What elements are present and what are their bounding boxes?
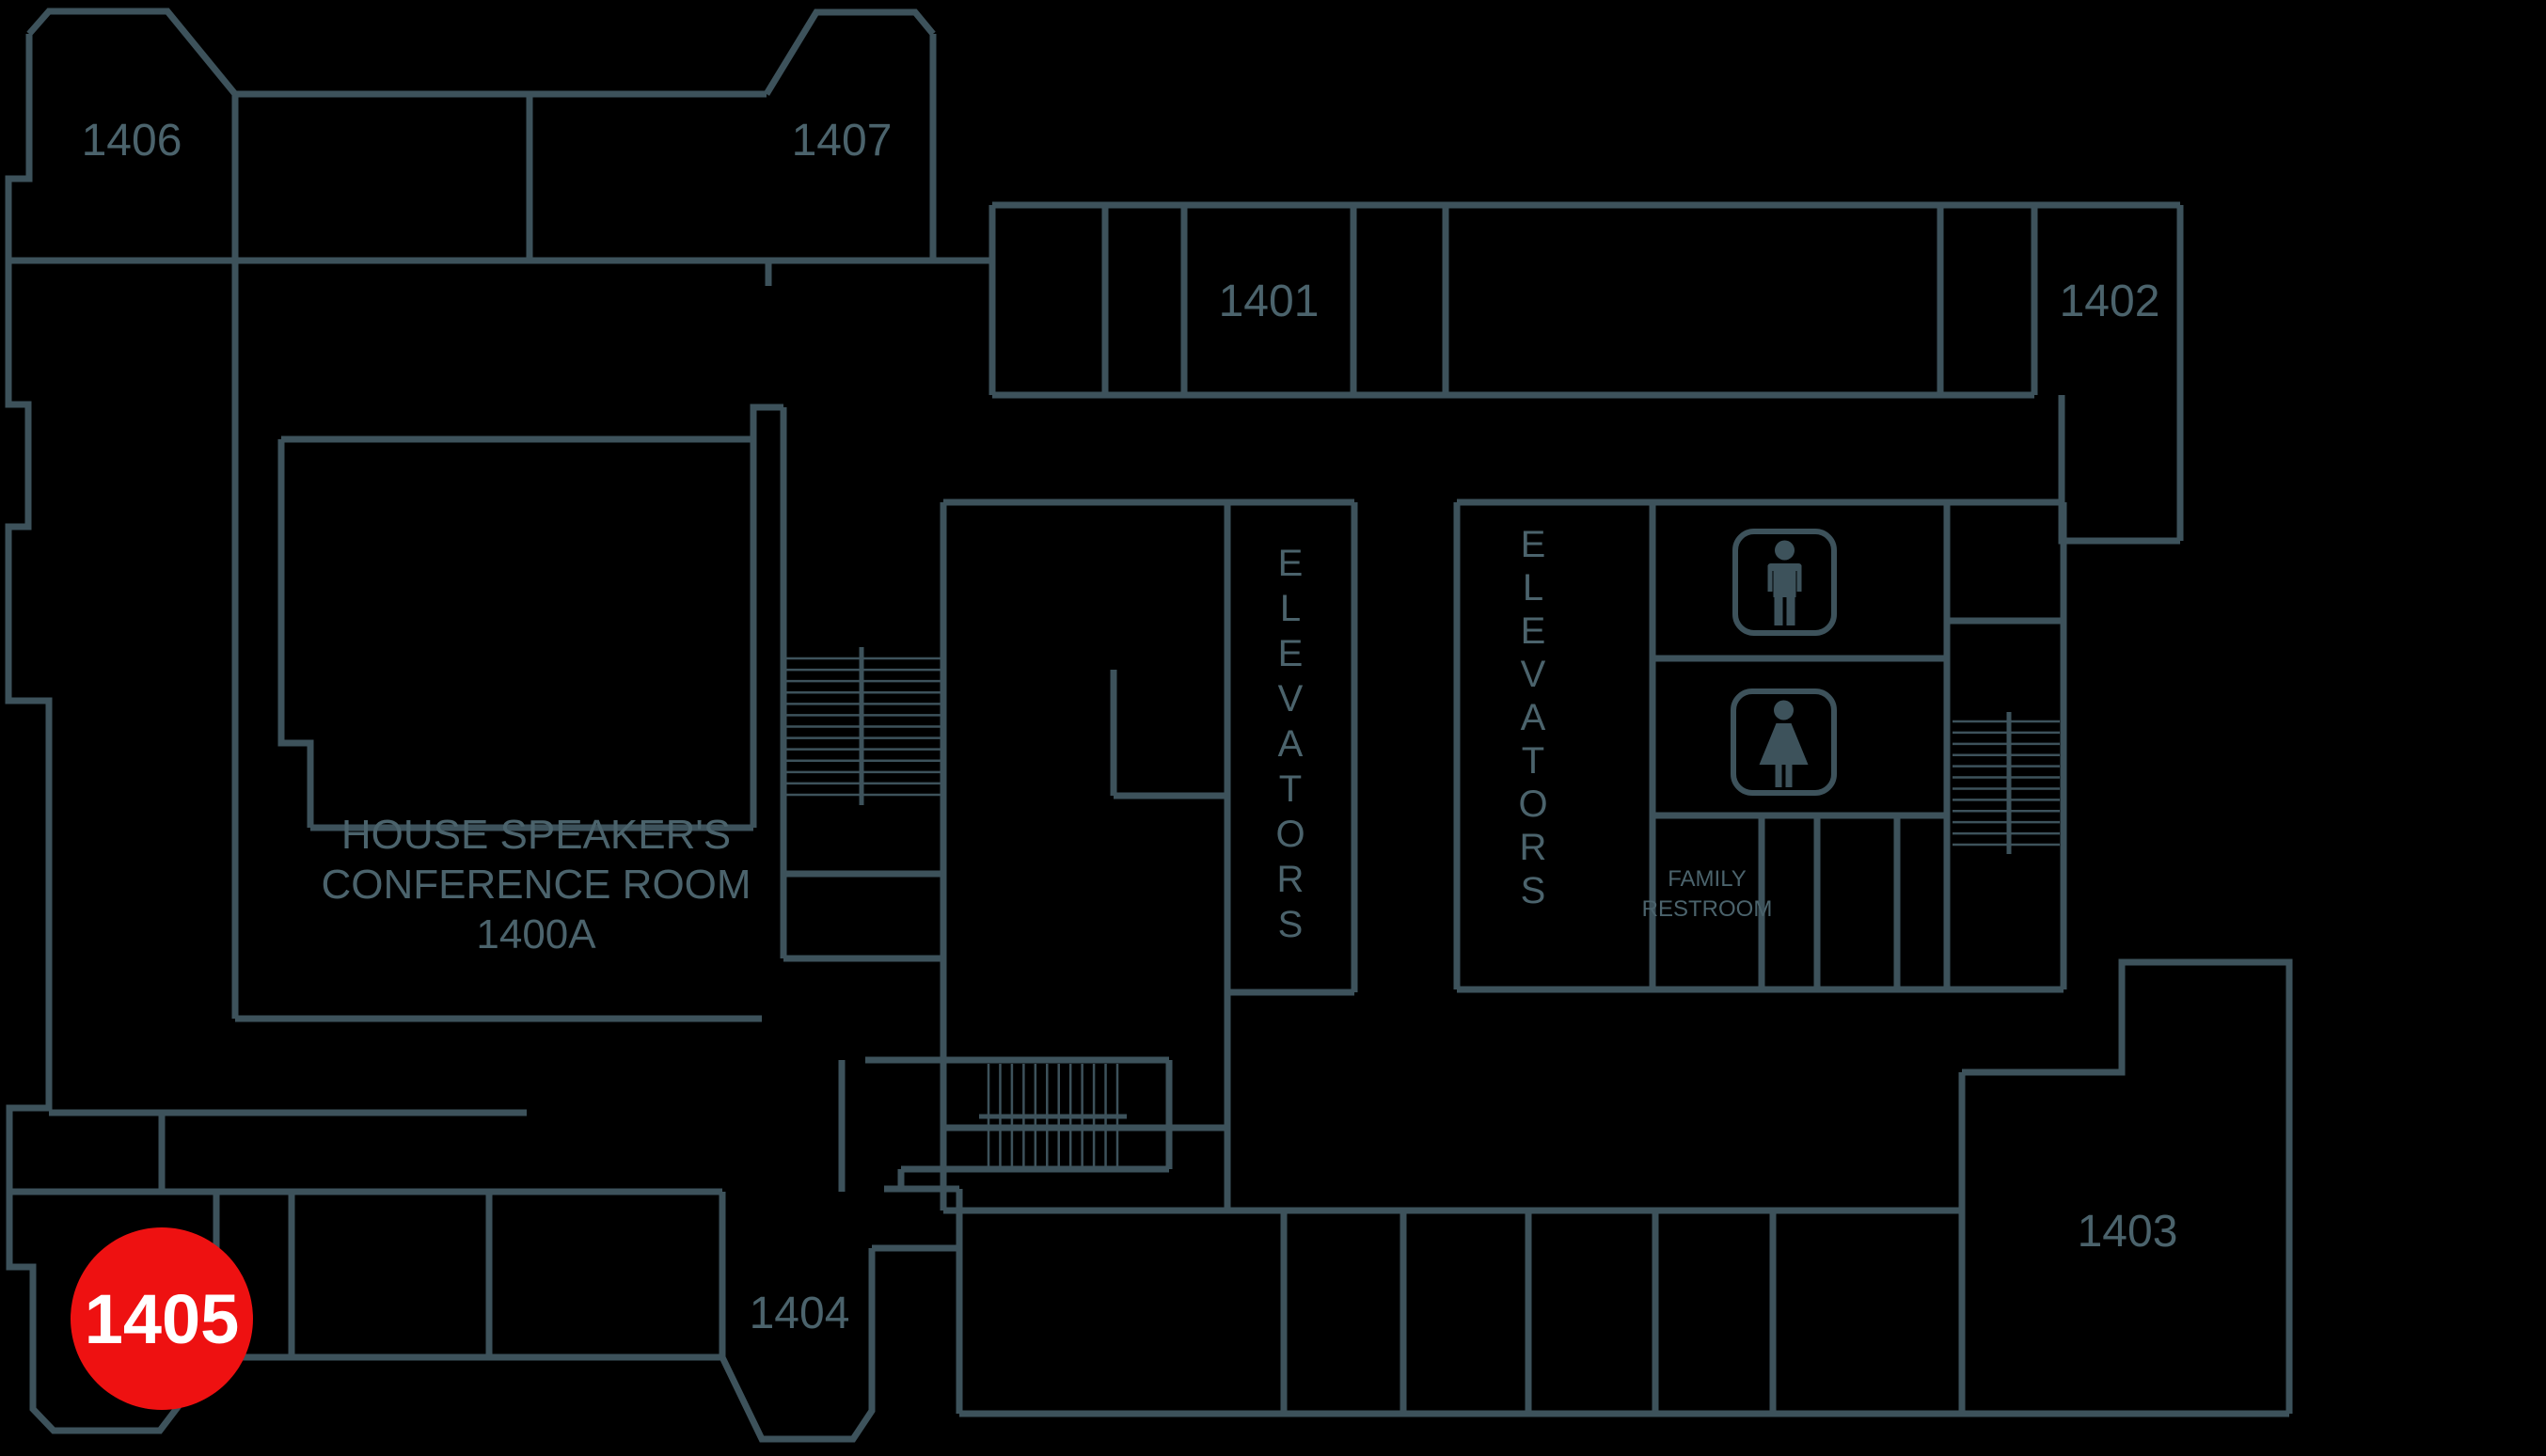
elevators-letter: E <box>1278 633 1304 674</box>
conference-room-label: HOUSE SPEAKER'S <box>341 812 731 858</box>
room-label-1402: 1402 <box>2060 277 2160 326</box>
elevators-letter: R <box>1520 827 1547 868</box>
floor-plan: 140614071401140214031404HOUSE SPEAKER'SC… <box>0 0 2546 1456</box>
elevators-letter: A <box>1521 697 1546 738</box>
family-restroom-label: RESTROOM <box>1642 896 1773 922</box>
elevators-letter: E <box>1278 543 1304 584</box>
elevators-letter: L <box>1523 567 1543 609</box>
elevators-label-1: ELEVATORS <box>1275 543 1305 945</box>
elevators-letter: E <box>1521 610 1546 652</box>
room-label-1401: 1401 <box>1219 277 1320 326</box>
elevators-letter: S <box>1278 904 1304 945</box>
floor-plan-svg: 140614071401140214031404HOUSE SPEAKER'SC… <box>0 0 2546 1456</box>
elevators-letter: E <box>1521 524 1546 565</box>
elevators-letter: O <box>1275 814 1305 855</box>
selected-room-label: 1405 <box>85 1280 240 1358</box>
elevators-letter: T <box>1522 740 1544 782</box>
elevators-letter: T <box>1279 768 1302 810</box>
elevators-label-2: ELEVATORS <box>1518 524 1547 911</box>
elevators-letter: O <box>1518 783 1547 825</box>
room-label-1406: 1406 <box>82 116 182 166</box>
room-label-1407: 1407 <box>792 116 893 166</box>
room-label-1404: 1404 <box>750 1289 850 1338</box>
elevators-letter: A <box>1278 723 1304 765</box>
elevators-letter: L <box>1280 588 1301 629</box>
elevators-letter: R <box>1277 859 1305 900</box>
elevators-letter: V <box>1278 678 1304 720</box>
room-label-1403: 1403 <box>2078 1207 2178 1257</box>
conference-room-label: 1400A <box>476 911 596 957</box>
conference-room-label: CONFERENCE ROOM <box>321 862 751 908</box>
family-restroom-label: FAMILY <box>1668 866 1747 892</box>
elevators-letter: S <box>1521 870 1546 911</box>
selected-room-marker: 1405 <box>71 1227 253 1410</box>
elevators-letter: V <box>1521 654 1546 695</box>
